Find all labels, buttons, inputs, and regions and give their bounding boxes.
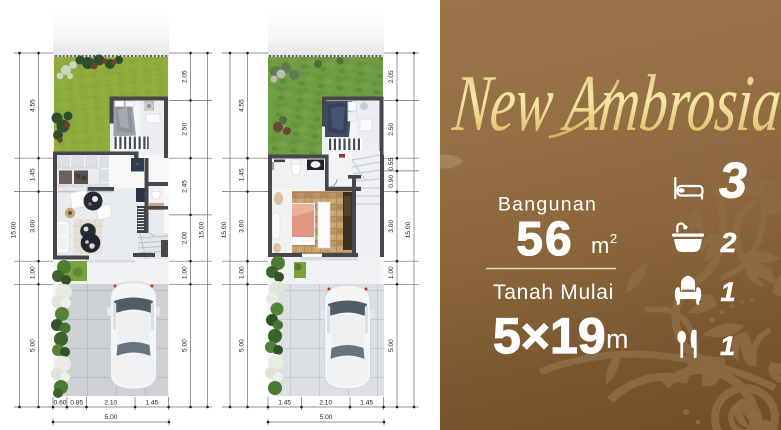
svg-text:1: 1 [720,331,735,361]
svg-text:1.45: 1.45 [360,400,373,407]
svg-text:New Ambrosia: New Ambrosia [449,59,781,148]
svg-text:m: m [606,324,629,354]
svg-text:0.85: 0.85 [70,400,83,407]
svg-text:15.00: 15.00 [11,221,18,238]
svg-text:5.00: 5.00 [239,339,246,352]
svg-text:2.05: 2.05 [182,70,189,83]
svg-text:5.00: 5.00 [182,339,189,352]
svg-text:1.45: 1.45 [30,168,37,181]
svg-text:3: 3 [719,153,747,209]
svg-text:2.10: 2.10 [319,400,332,407]
svg-text:5×19: 5×19 [493,308,606,364]
svg-text:2.05: 2.05 [388,70,395,83]
svg-text:0.55: 0.55 [388,157,395,170]
svg-text:1.00: 1.00 [182,266,189,279]
svg-text:1.00: 1.00 [30,266,37,279]
svg-text:5.00: 5.00 [388,339,395,352]
svg-text:1.00: 1.00 [388,266,395,279]
svg-text:1.45: 1.45 [239,168,246,181]
svg-text:5.00: 5.00 [105,414,118,421]
svg-text:0.60: 0.60 [54,400,67,407]
svg-text:2.45: 2.45 [182,180,189,193]
svg-text:0.90: 0.90 [388,175,395,188]
svg-text:2.50: 2.50 [388,123,395,136]
svg-text:5.00: 5.00 [320,414,333,421]
svg-text:m: m [591,233,609,258]
svg-text:1: 1 [720,277,735,307]
svg-text:1.45: 1.45 [145,400,158,407]
svg-text:56: 56 [516,213,573,266]
svg-text:4.55: 4.55 [239,99,246,112]
svg-text:3.00: 3.00 [30,220,37,233]
svg-text:4.55: 4.55 [30,99,37,112]
svg-text:2: 2 [720,227,737,258]
svg-text:15.00: 15.00 [199,221,206,238]
svg-text:2: 2 [610,231,617,246]
svg-text:1.45: 1.45 [278,400,291,407]
svg-text:15.00: 15.00 [221,221,228,238]
svg-text:2.10: 2.10 [104,400,117,407]
svg-text:Tanah Mulai: Tanah Mulai [493,281,614,304]
svg-text:2.00: 2.00 [182,231,189,244]
svg-text:3.00: 3.00 [239,220,246,233]
svg-text:1.00: 1.00 [239,266,246,279]
svg-text:2.50: 2.50 [182,123,189,136]
svg-text:15.00: 15.00 [405,221,412,238]
svg-text:5.00: 5.00 [30,339,37,352]
svg-text:3.00: 3.00 [388,220,395,233]
